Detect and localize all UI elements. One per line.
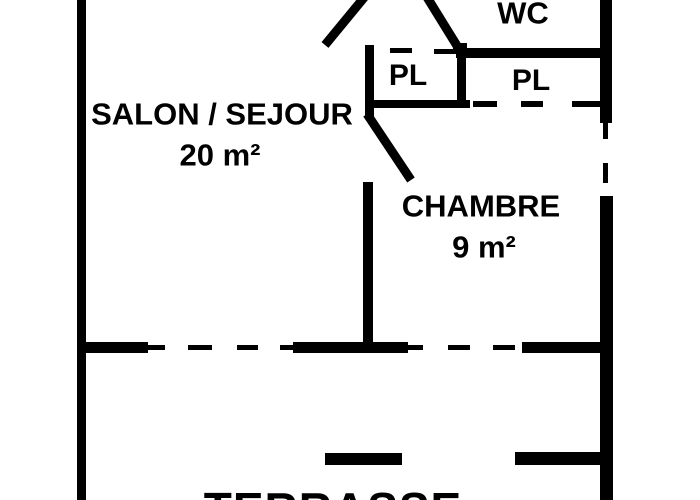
room-label-terrasse: TERRASSE <box>204 486 462 500</box>
wall-wc-bottom <box>456 48 612 58</box>
room-area-salon: 20 m² <box>180 140 261 171</box>
closet-right-front-dash-2 <box>521 101 543 107</box>
door-swing-chambre <box>367 114 411 180</box>
room-area-chambre: 9 m² <box>452 232 516 263</box>
room-label-salon: SALON / SEJOUR <box>91 99 353 130</box>
room-label-closet-right: PL <box>512 66 550 96</box>
opening-right-dash-1 <box>448 345 470 350</box>
opening-left-stub-a <box>148 345 165 350</box>
room-label-wc: WC <box>497 0 549 29</box>
wall-chambre-left <box>363 182 373 343</box>
wall-closet-right-side <box>457 48 466 107</box>
window-right-pane-top <box>603 123 608 139</box>
room-label-closet-left: PL <box>389 61 427 91</box>
closet-left-top-dash-2 <box>434 49 457 54</box>
wall-cross-left <box>77 342 148 353</box>
closet-right-front-dash-1 <box>473 101 497 107</box>
closet-right-front-dash-3 <box>572 101 602 107</box>
floor-plan: SALON / SEJOUR 20 m² WC PL PL CHAMBRE 9 … <box>0 0 700 500</box>
closet-left-top-dash-1 <box>390 48 412 53</box>
room-label-chambre: CHAMBRE <box>402 191 560 222</box>
door-swing-entry-left <box>325 0 367 45</box>
terrace-wall-middle <box>325 453 402 465</box>
wall-left <box>77 0 86 500</box>
terrace-wall-right <box>515 452 613 465</box>
door-swing-entry-right <box>425 0 459 49</box>
wall-cross-right <box>522 342 612 353</box>
window-right-pane-bottom <box>603 163 608 183</box>
closet-left-front-line <box>365 100 470 108</box>
wall-cross-middle <box>293 342 408 353</box>
opening-right-dash-2 <box>493 345 515 350</box>
opening-left-dash-2 <box>237 345 258 350</box>
opening-left-stub-b <box>280 345 293 350</box>
opening-right-stub-a <box>408 345 423 350</box>
floor-plan-drawing <box>0 0 700 500</box>
opening-left-dash-1 <box>188 345 212 350</box>
